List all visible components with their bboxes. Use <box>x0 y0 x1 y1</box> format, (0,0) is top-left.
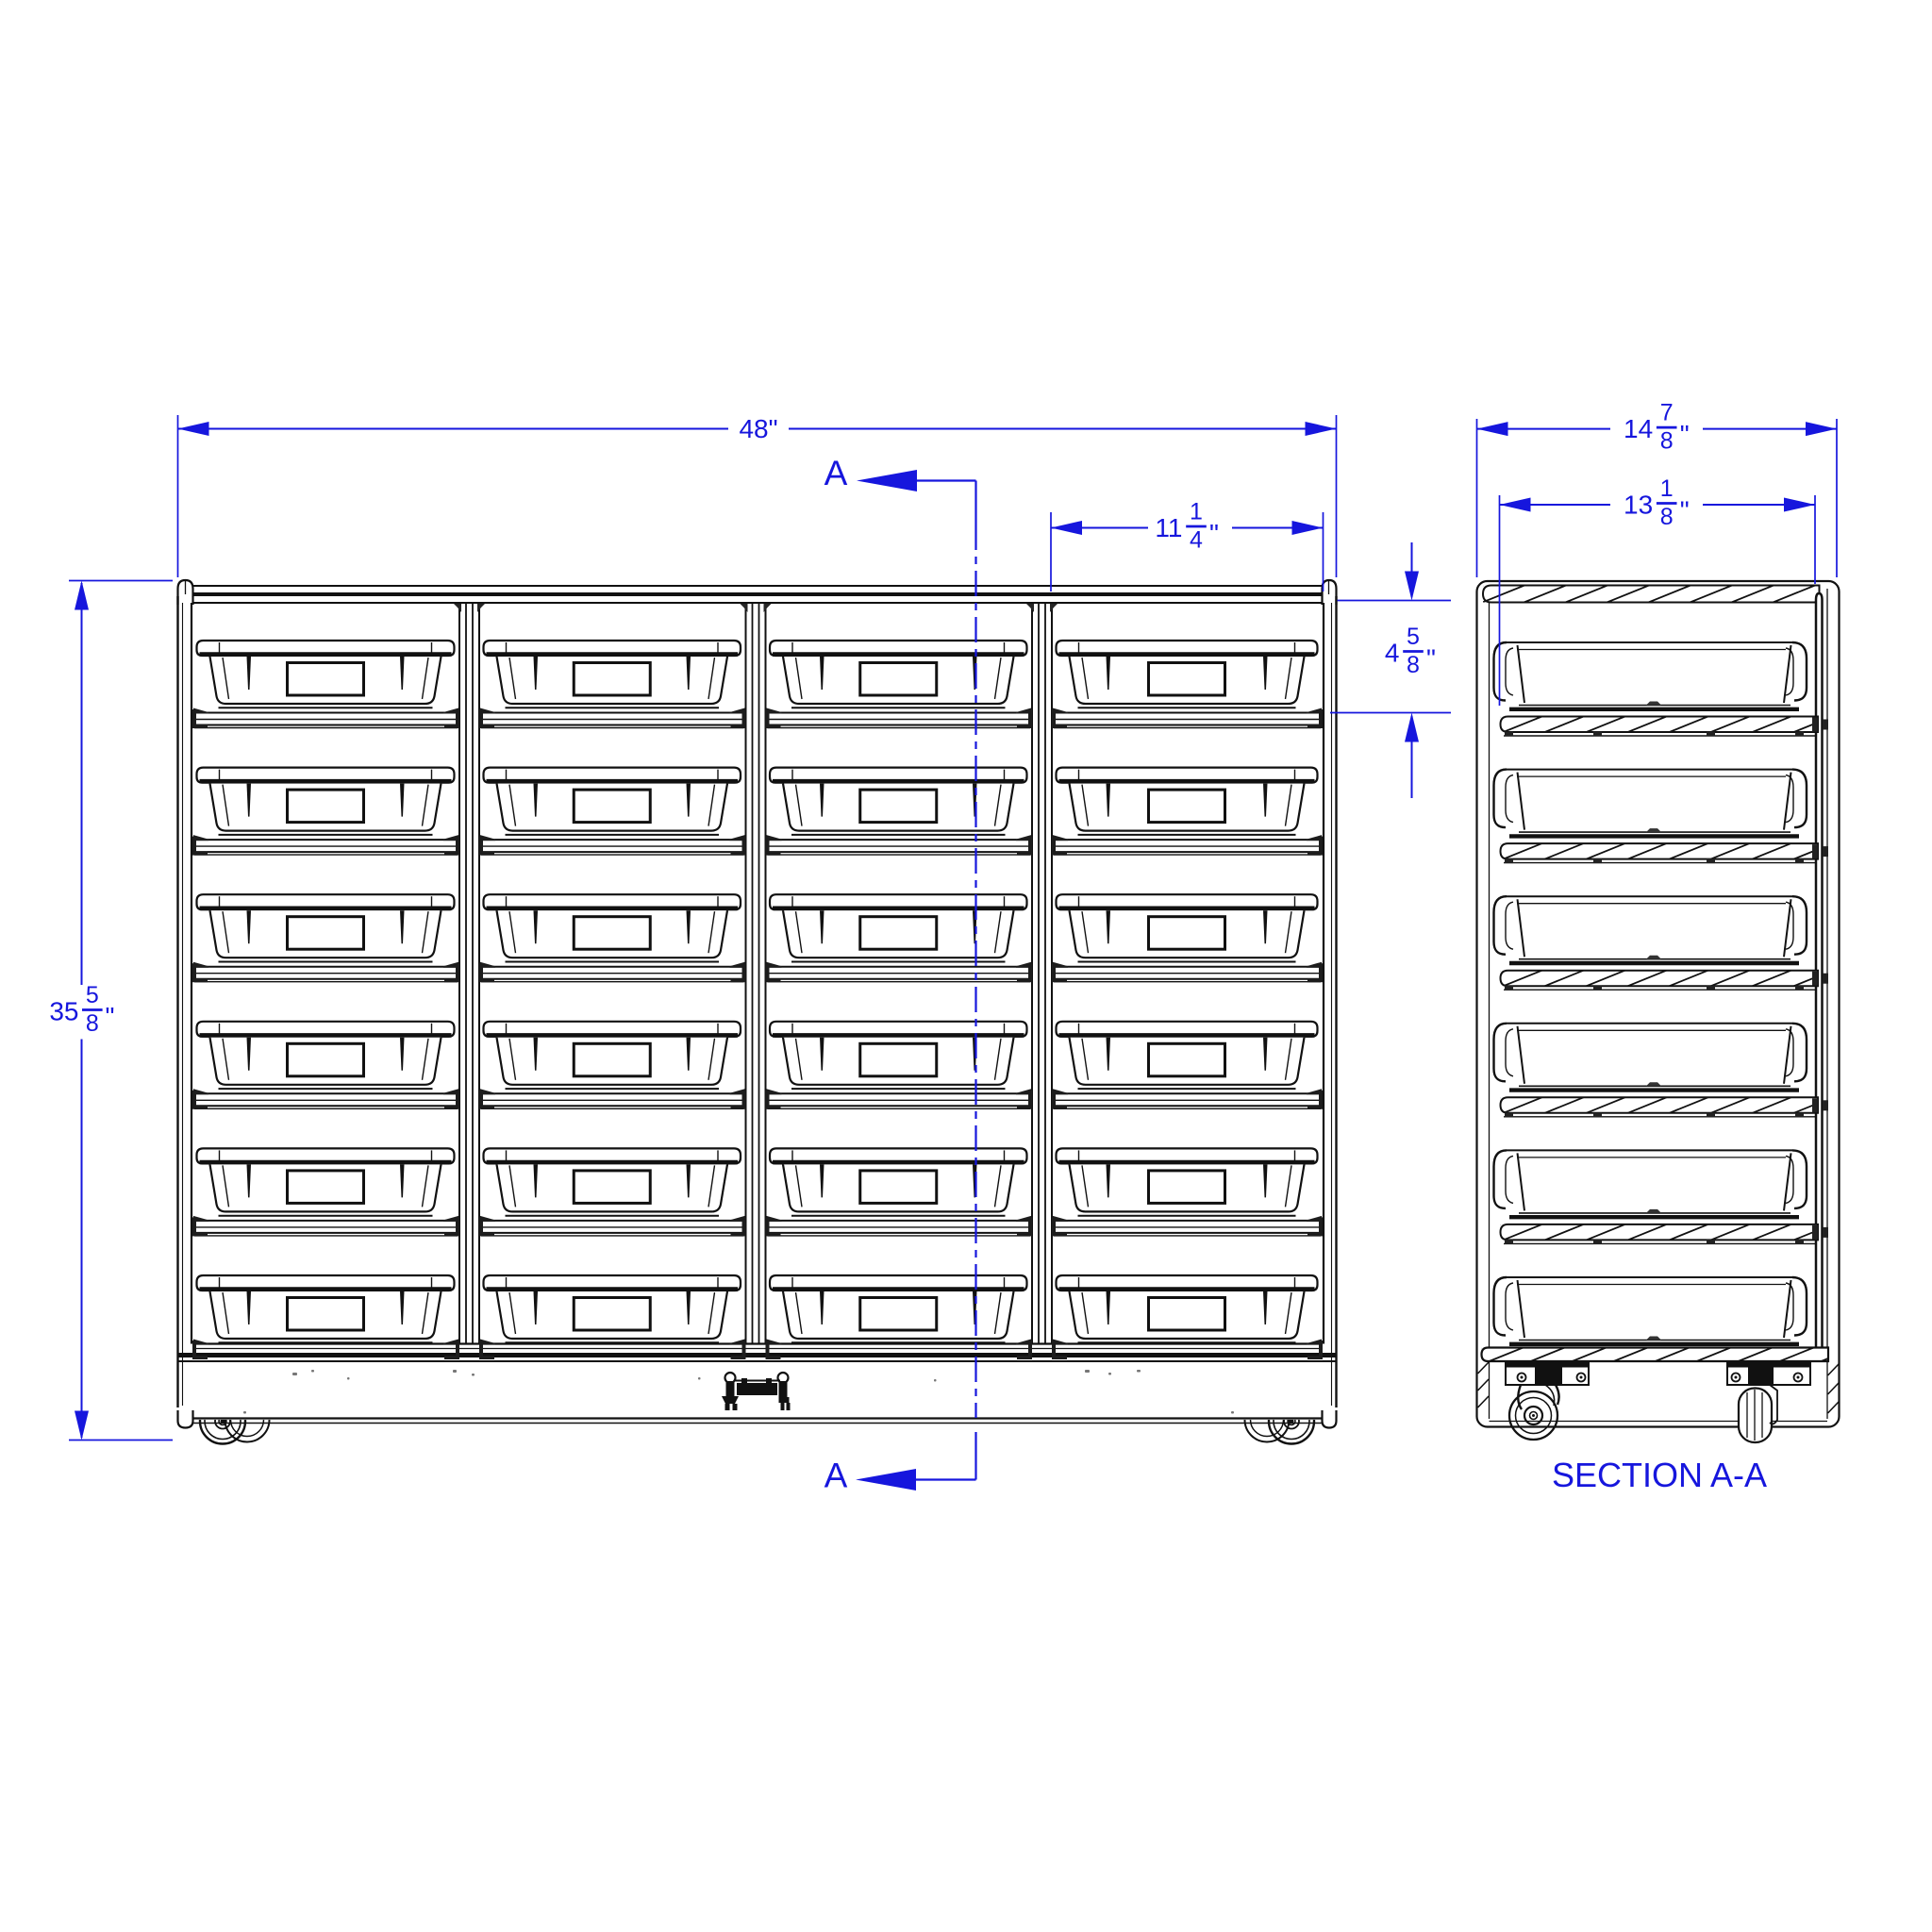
svg-text:": " <box>1426 644 1436 674</box>
svg-text:8: 8 <box>1660 504 1674 530</box>
svg-text:48": 48" <box>739 414 777 443</box>
svg-text:5: 5 <box>1407 624 1420 650</box>
svg-text:7: 7 <box>1660 400 1674 426</box>
svg-text:A: A <box>824 1457 848 1495</box>
svg-text:": " <box>1209 519 1219 548</box>
svg-text:14: 14 <box>1624 414 1653 443</box>
svg-text:8: 8 <box>1660 428 1674 455</box>
svg-text:11: 11 <box>1155 513 1182 542</box>
svg-text:SECTION A-A: SECTION A-A <box>1552 1456 1767 1494</box>
svg-text:A: A <box>824 454 848 492</box>
svg-text:5: 5 <box>86 982 99 1008</box>
svg-text:": " <box>106 1002 115 1031</box>
svg-text:1: 1 <box>1660 475 1674 502</box>
svg-text:4: 4 <box>1190 527 1203 554</box>
svg-text:": " <box>1680 496 1690 525</box>
svg-text:1: 1 <box>1190 499 1203 525</box>
svg-text:13: 13 <box>1624 491 1653 520</box>
svg-text:": " <box>1680 420 1690 449</box>
svg-text:8: 8 <box>86 1010 99 1037</box>
svg-text:35: 35 <box>49 997 78 1026</box>
svg-text:4: 4 <box>1385 639 1400 668</box>
svg-text:8: 8 <box>1407 652 1420 678</box>
